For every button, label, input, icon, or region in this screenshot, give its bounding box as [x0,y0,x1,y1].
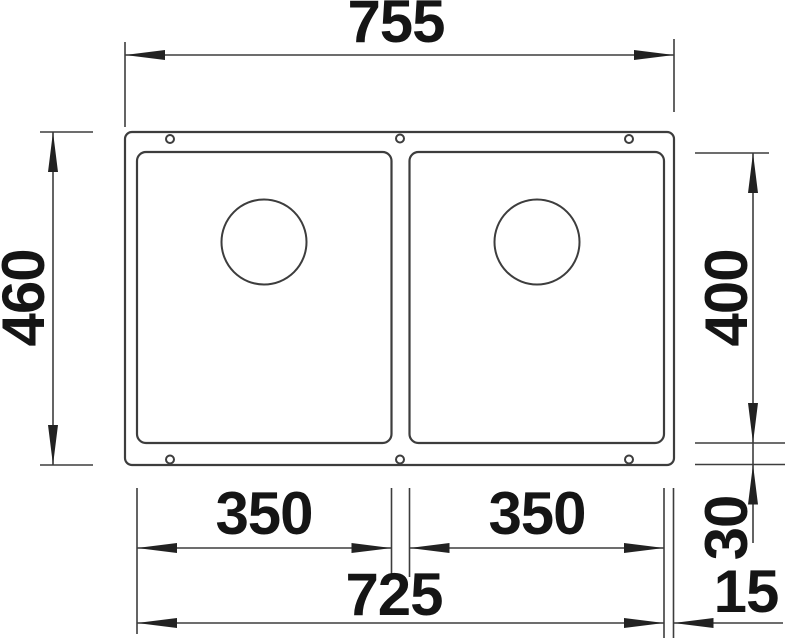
left-bowl-outline [137,152,392,443]
sink-dimension-drawing: 755 460 400 30 350 [0,0,787,640]
dim-label-side-gap: 15 [714,558,779,625]
sink-body [125,132,674,465]
dim-label-bottom-gap: 30 [693,496,760,561]
dim-label-cutout-width: 725 [345,561,442,628]
mounting-hole [625,135,633,143]
dim-cutout-width: 725 [137,561,664,628]
mounting-hole [166,456,174,464]
dim-bowl-depth: 400 [693,153,785,443]
dim-label-bowl-depth: 400 [693,249,760,346]
drawing-canvas: 755 460 400 30 350 [0,0,787,640]
mounting-hole [396,456,404,464]
dim-label-overall-depth: 460 [0,249,57,346]
mounting-hole [396,135,404,143]
dim-right-bowl-width: 350 [410,480,665,638]
right-bowl-outline [410,152,665,443]
dim-overall-width: 755 [125,0,674,127]
dim-bottom-gap: 30 [693,443,785,560]
left-drain-circle [222,200,307,285]
right-drain-circle [495,200,580,285]
dim-overall-depth: 460 [0,132,93,465]
mounting-hole [166,135,174,143]
dim-label-overall-width: 755 [347,0,444,55]
dim-label-left-bowl-width: 350 [215,480,312,547]
sink-outline [125,132,674,465]
dim-label-right-bowl-width: 350 [488,480,585,547]
mounting-hole [625,456,633,464]
